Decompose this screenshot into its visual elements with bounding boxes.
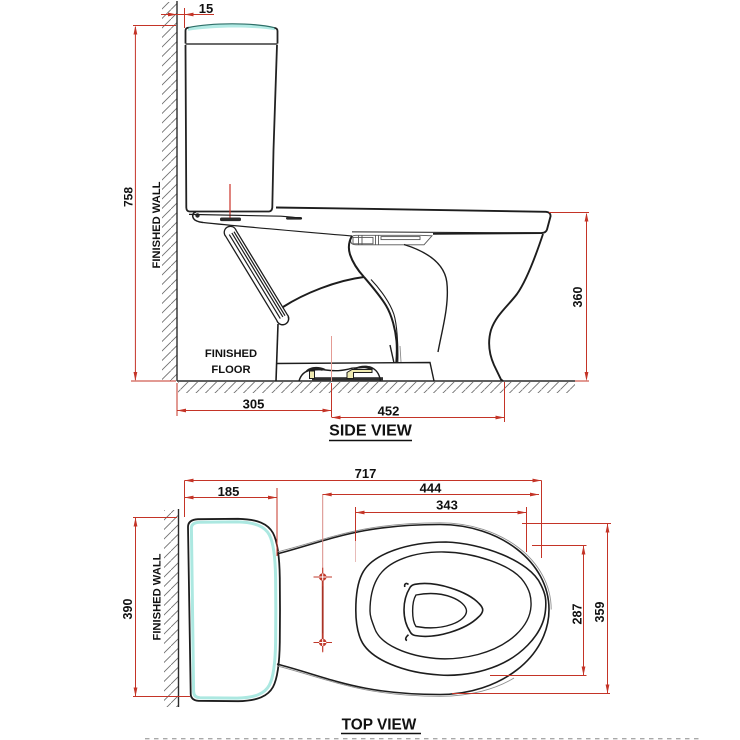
svg-text:FLOOR: FLOOR [211, 364, 250, 376]
svg-text:SIDE VIEW: SIDE VIEW [329, 423, 413, 440]
svg-text:185: 185 [218, 484, 240, 499]
svg-text:FINISHED: FINISHED [205, 348, 257, 360]
svg-text:305: 305 [243, 397, 265, 412]
svg-text:FINISHED WALL: FINISHED WALL [152, 553, 164, 640]
svg-text:360: 360 [571, 287, 585, 308]
svg-text:717: 717 [355, 466, 377, 481]
svg-text:390: 390 [121, 599, 135, 620]
svg-text:359: 359 [593, 602, 607, 623]
svg-text:FINISHED WALL: FINISHED WALL [151, 181, 163, 268]
svg-text:452: 452 [378, 404, 400, 419]
svg-text:343: 343 [436, 498, 458, 513]
svg-text:287: 287 [571, 604, 585, 625]
svg-text:758: 758 [122, 187, 136, 207]
svg-text:TOP VIEW: TOP VIEW [342, 716, 417, 733]
svg-text:15: 15 [199, 1, 213, 16]
svg-text:444: 444 [420, 481, 442, 496]
